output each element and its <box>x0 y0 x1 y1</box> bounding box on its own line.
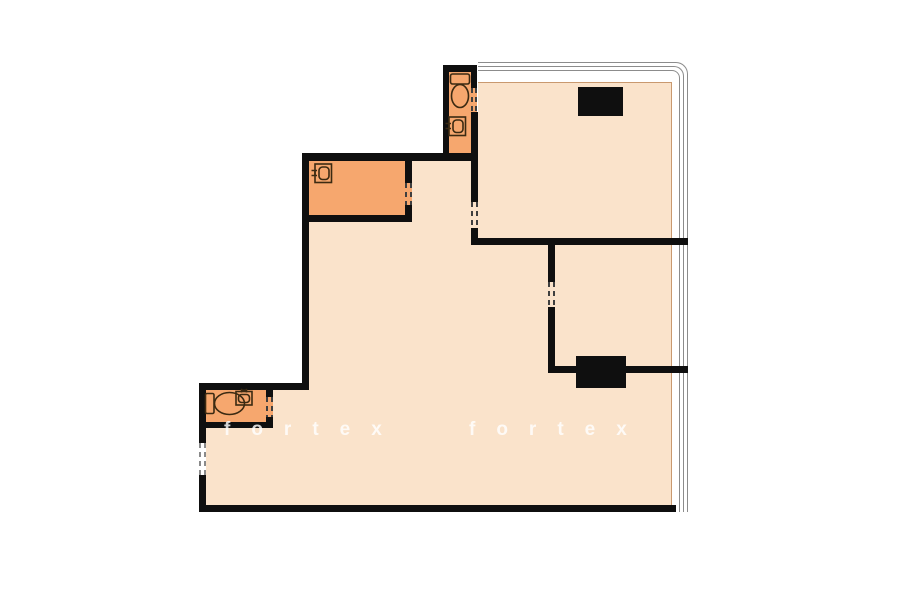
watermark-text: fortex <box>224 419 403 441</box>
wall-segment <box>199 383 309 390</box>
door-jamb-dash <box>199 443 201 475</box>
door-opening-bedroom <box>548 282 555 307</box>
wall-segment <box>302 153 478 161</box>
door-jamb-dash <box>266 397 268 417</box>
sink-icon <box>445 116 467 137</box>
door-jamb-dash <box>471 202 473 228</box>
wall-segment <box>266 390 273 397</box>
watermark-text: fortex <box>469 419 648 441</box>
floor-plan-canvas: fortexfortex <box>0 0 900 604</box>
door-jamb-dash <box>548 282 550 307</box>
door-jamb-dash <box>476 202 478 228</box>
wall-segment <box>471 238 688 245</box>
door-jamb-dash <box>405 183 407 205</box>
door-jamb-dash <box>204 443 206 475</box>
entrance-opening <box>199 443 206 475</box>
door-opening-bathroom-top <box>471 88 477 112</box>
door-opening-kitchen <box>405 183 412 205</box>
wall-segment <box>471 65 477 88</box>
window-line <box>478 70 680 512</box>
sink-icon <box>235 388 253 406</box>
door-opening-hall <box>471 202 478 228</box>
sink-icon <box>311 163 333 184</box>
wall-segment <box>548 366 688 373</box>
wall-segment <box>471 112 478 202</box>
door-jamb-dash <box>410 183 412 205</box>
wall-segment <box>302 215 412 222</box>
door-jamb-dash <box>471 88 473 112</box>
wall-segment <box>548 307 555 372</box>
wall-segment <box>405 161 412 183</box>
wall-segment <box>548 245 555 282</box>
wall-segment <box>199 505 676 512</box>
wall-segment <box>302 153 309 390</box>
door-opening-bathroom-bottom <box>266 397 273 417</box>
door-jamb-dash <box>271 397 273 417</box>
shaft-top <box>578 87 623 116</box>
toilet-icon <box>449 72 471 110</box>
door-jamb-dash <box>475 88 477 112</box>
door-jamb-dash <box>553 282 555 307</box>
